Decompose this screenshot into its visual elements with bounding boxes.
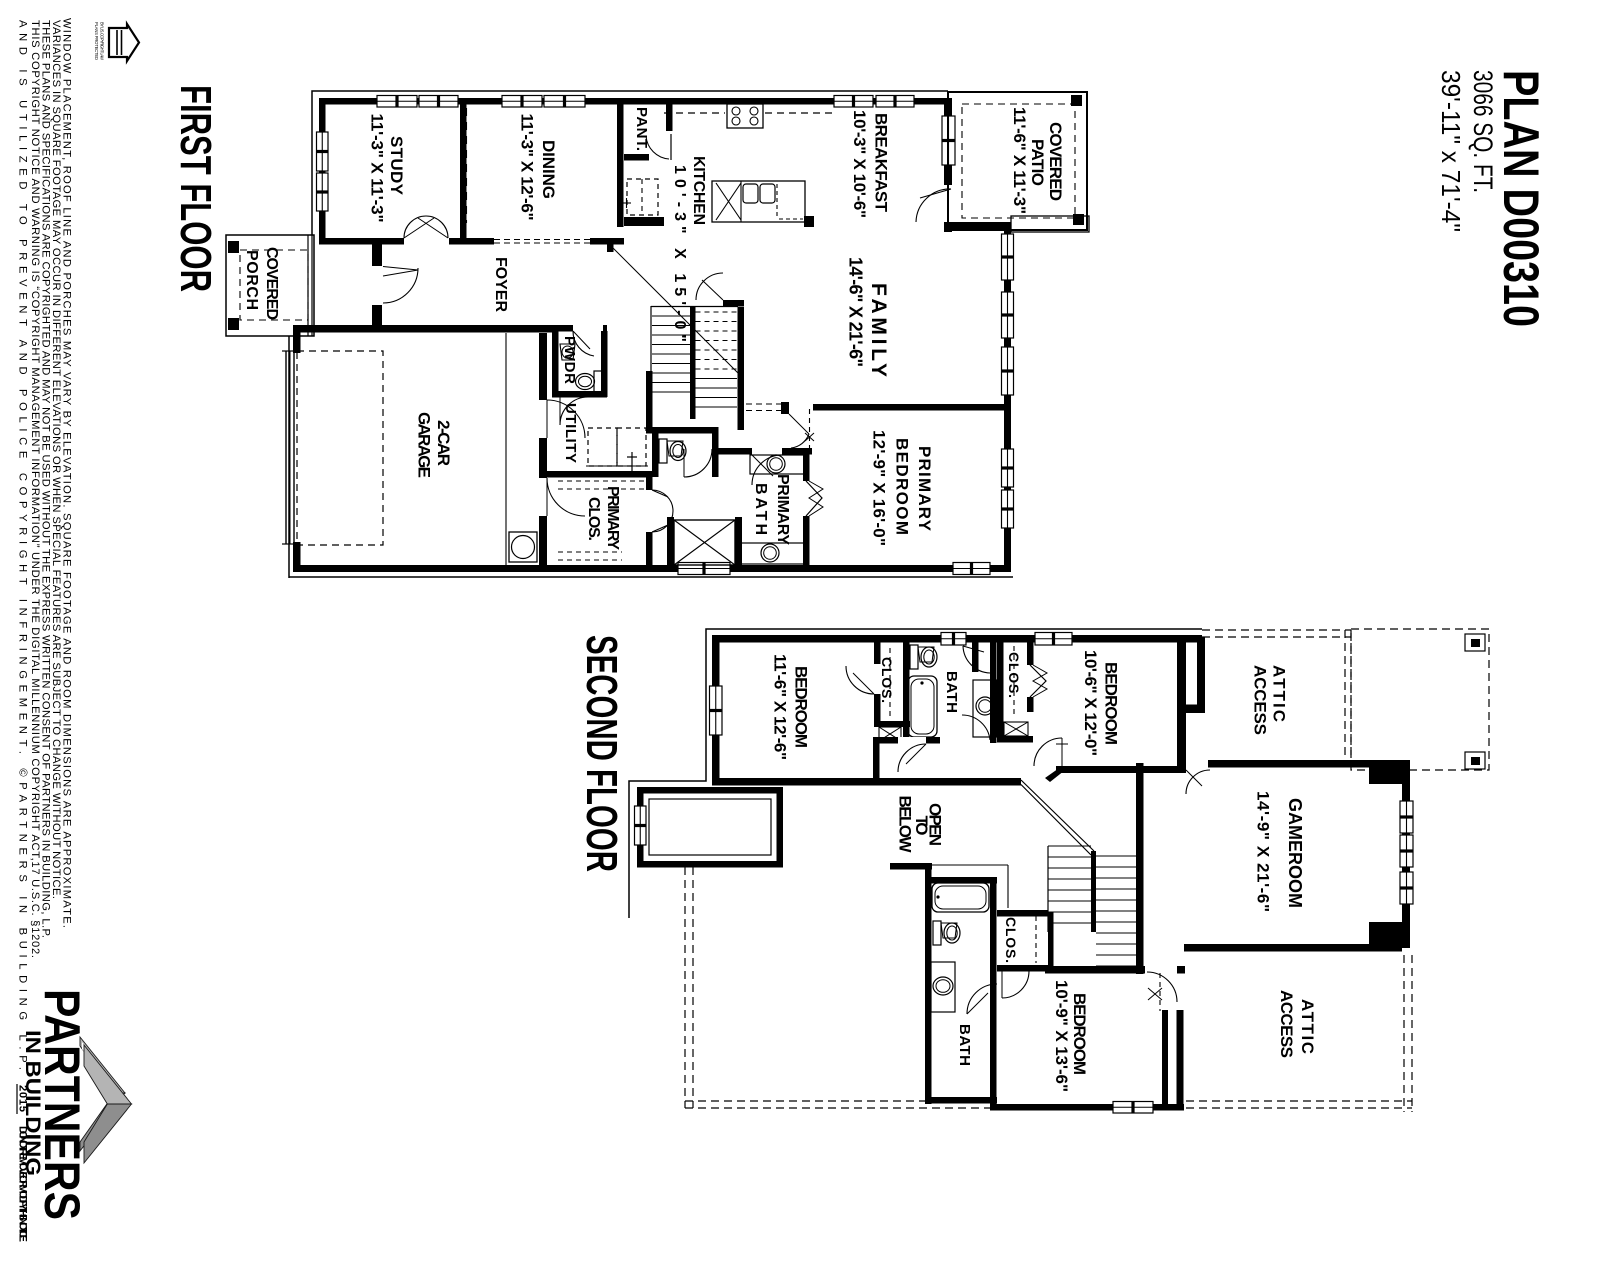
svg-text:PRIMARY: PRIMARY: [774, 474, 791, 545]
svg-text:BY U.S. COPYRIGHT LAW: BY U.S. COPYRIGHT LAW: [100, 22, 105, 60]
svg-text:11'-3" X 12'-6": 11'-3" X 12'-6": [518, 114, 537, 221]
svg-text:39'-11" x 71'-4": 39'-11" x 71'-4": [1436, 70, 1466, 232]
svg-text:PRIMARY: PRIMARY: [604, 486, 621, 550]
svg-text:COVERED: COVERED: [1046, 122, 1065, 201]
svg-text:BEDROOM: BEDROOM: [1070, 993, 1089, 1075]
svg-text:STUDY: STUDY: [387, 136, 406, 196]
svg-text:ACCESS: ACCESS: [1277, 990, 1296, 1058]
svg-text:11'-6" X 11'-3": 11'-6" X 11'-3": [1010, 107, 1029, 214]
svg-text:14'-9" X 21'-6": 14'-9" X 21'-6": [1254, 791, 1273, 912]
svg-text:IN BUILDING: IN BUILDING: [21, 1030, 44, 1176]
svg-text:GAMEROOM: GAMEROOM: [1285, 798, 1305, 908]
svg-text:PWDR: PWDR: [561, 336, 578, 384]
svg-text:12'-9" X 16'-0": 12'-9" X 16'-0": [870, 430, 889, 546]
svg-text:2-CAR: 2-CAR: [434, 420, 453, 466]
svg-text:PANT.: PANT.: [633, 107, 650, 151]
svg-text:BATH: BATH: [943, 671, 960, 713]
svg-text:11'-3" X 11'-3": 11'-3" X 11'-3": [368, 114, 387, 223]
svg-text:PLAN D00310: PLAN D00310: [1493, 70, 1549, 327]
svg-text:PATIO: PATIO: [1028, 139, 1047, 186]
svg-text:SECOND FLOOR: SECOND FLOOR: [577, 635, 626, 872]
svg-text:DINING: DINING: [539, 140, 558, 199]
svg-text:10'-9" X 13'-6": 10'-9" X 13'-6": [1052, 980, 1071, 1092]
svg-text:BATH: BATH: [956, 1024, 973, 1066]
svg-text:PRIMARY: PRIMARY: [915, 446, 934, 532]
svg-text:FIRST FLOOR: FIRST FLOOR: [171, 85, 220, 292]
svg-text:UTILITY: UTILITY: [562, 403, 579, 463]
svg-text:3066 SQ. FT.: 3066 SQ. FT.: [1468, 70, 1498, 193]
svg-text:PLANS PROTECTED: PLANS PROTECTED: [94, 22, 99, 60]
svg-text:11'-6" X 12'-6": 11'-6" X 12'-6": [771, 654, 790, 760]
svg-text:CLOS.: CLOS.: [1006, 652, 1022, 698]
svg-text:THIS COPYRIGHT NOTICE AND WARN: THIS COPYRIGHT NOTICE AND WARNING IS “CO…: [29, 20, 41, 958]
svg-text:KITCHEN: KITCHEN: [690, 156, 707, 225]
svg-text:BEDROOM: BEDROOM: [1102, 662, 1121, 745]
svg-text:BEDROOM: BEDROOM: [792, 666, 811, 748]
svg-text:ACCESS: ACCESS: [1251, 665, 1270, 735]
svg-text:COVERED: COVERED: [263, 247, 280, 320]
svg-text:FOYER: FOYER: [492, 257, 509, 312]
svg-text:ATTIC: ATTIC: [1298, 999, 1317, 1054]
svg-text:PORCH: PORCH: [243, 250, 260, 310]
svg-text:BEDROOM: BEDROOM: [893, 438, 912, 535]
svg-text:GARAGE: GARAGE: [415, 412, 434, 478]
svg-text:ATTIC: ATTIC: [1270, 665, 1289, 722]
svg-text:10'-6" X 12'-0": 10'-6" X 12'-0": [1081, 650, 1100, 756]
svg-text:BREAKFAST: BREAKFAST: [872, 113, 891, 213]
svg-text:CLOS.: CLOS.: [1003, 917, 1019, 963]
svg-text:10'-3" X 10'-6": 10'-3" X 10'-6": [850, 110, 869, 218]
svg-text:14'-6" X 21'-6": 14'-6" X 21'-6": [846, 257, 866, 367]
svg-text:BELOW: BELOW: [896, 796, 915, 854]
svg-text:CLOS.: CLOS.: [585, 497, 602, 541]
svg-text:CLOS.: CLOS.: [879, 657, 895, 703]
